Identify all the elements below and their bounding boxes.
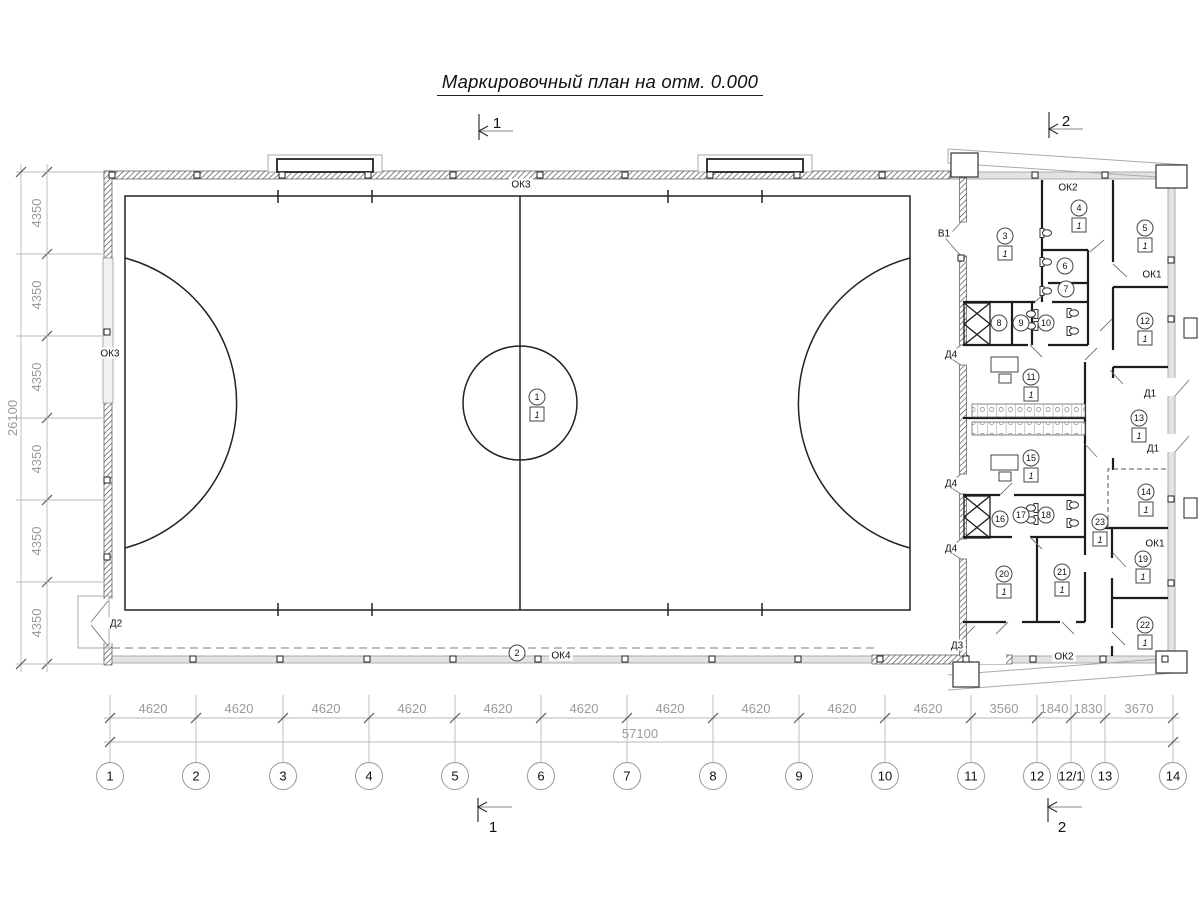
dim-label: 3670 <box>1125 701 1154 716</box>
room-number: 9 <box>1018 318 1023 328</box>
dim-label: 1840 <box>1040 701 1069 716</box>
column-square <box>622 172 628 178</box>
room-number: 14 <box>1141 487 1151 497</box>
room-number: 20 <box>999 569 1009 579</box>
floor-tag: 1 <box>1142 638 1147 648</box>
column-square <box>1030 656 1036 662</box>
grid-bubble-label: 12/1 <box>1058 769 1083 784</box>
hatched-wall <box>104 171 950 179</box>
room-number: 3 <box>1002 231 1007 241</box>
room-number: 2 <box>514 648 519 658</box>
room-number: 4 <box>1076 203 1081 213</box>
column-square <box>365 172 371 178</box>
column-square <box>190 656 196 662</box>
column-square <box>877 656 883 662</box>
opening-label: ОК2 <box>1054 652 1074 663</box>
dim-label: 4620 <box>398 701 427 716</box>
dim-total-label: 57100 <box>622 726 658 741</box>
wc-fixture <box>1070 502 1079 509</box>
dim-label: 4350 <box>29 527 44 556</box>
dim-label: 4350 <box>29 609 44 638</box>
floor-tag: 1 <box>1142 334 1147 344</box>
room-number: 6 <box>1062 261 1067 271</box>
field-left-arc <box>125 258 237 548</box>
opening-label: Д2 <box>110 619 123 630</box>
opening-label: Д4 <box>945 479 958 490</box>
opening-label: ОК4 <box>551 651 571 662</box>
column-square <box>194 172 200 178</box>
column-square <box>794 172 800 178</box>
room-number: 11 <box>1026 372 1035 382</box>
floor-tag: 1 <box>1059 585 1064 595</box>
section-marker-2-top: 2 <box>1049 112 1083 138</box>
room-number: 17 <box>1016 510 1026 520</box>
dim-label: 4350 <box>29 445 44 474</box>
grid-bubble-label: 2 <box>192 769 199 784</box>
wc-fixture <box>1043 259 1052 266</box>
room-number: 1 <box>534 392 539 402</box>
wc-fixture <box>1070 520 1079 527</box>
opening-label: ОК1 <box>1142 270 1162 281</box>
room-number: 16 <box>995 514 1005 524</box>
title-block: Маркировочный план на отм. 0.000 <box>0 71 1200 93</box>
opening-label: Д1 <box>1147 444 1160 455</box>
column-square <box>104 329 110 335</box>
field-boundary <box>125 196 910 610</box>
door-gap-D1 <box>1167 434 1176 452</box>
dim-total-label: 26100 <box>5 400 20 436</box>
floor-tag: 1 <box>1028 471 1033 481</box>
grid-bubble-label: 13 <box>1098 769 1112 784</box>
exterior-outlines <box>78 149 1187 690</box>
floor-tag: 1 <box>1136 431 1141 441</box>
floor-tag: 1 <box>1140 572 1145 582</box>
room-number: 13 <box>1134 413 1144 423</box>
opening-label: ОК2 <box>1058 183 1078 194</box>
column-square <box>709 656 715 662</box>
dim-label: 4620 <box>225 701 254 716</box>
section-label: 1 <box>493 115 501 132</box>
grid-bubble-label: 5 <box>451 769 458 784</box>
opening-label: ОК1 <box>1145 539 1165 550</box>
column-square <box>364 656 370 662</box>
grid-bubble-label: 3 <box>279 769 286 784</box>
room-number: 5 <box>1142 223 1147 233</box>
dim-label: 3560 <box>990 701 1019 716</box>
dim-label: 4620 <box>570 701 599 716</box>
goal-right <box>698 155 812 172</box>
room-number: 12 <box>1140 316 1150 326</box>
column-square <box>450 656 456 662</box>
grid-bubble-label: 6 <box>537 769 544 784</box>
column-square <box>1102 172 1108 178</box>
floor-tag: 1 <box>1076 221 1081 231</box>
grid-bubble-label: 9 <box>795 769 802 784</box>
room-number: 18 <box>1041 510 1051 520</box>
floor-tag: 1 <box>1097 535 1102 545</box>
floor-tag: 1 <box>1002 249 1007 259</box>
dim-label: 4620 <box>656 701 685 716</box>
grid-bubble-label: 10 <box>878 769 892 784</box>
room-number: 23 <box>1095 517 1105 527</box>
wc-fixture <box>1043 288 1052 295</box>
grid-bubble-label: 11 <box>964 769 978 784</box>
room-number: 19 <box>1138 554 1148 564</box>
room-number: 8 <box>996 318 1001 328</box>
opening-label: ОК3 <box>100 349 120 360</box>
room-number: 7 <box>1063 284 1068 294</box>
dim-label: 4620 <box>312 701 341 716</box>
floor-tag: 1 <box>1001 587 1006 597</box>
column-square <box>109 172 115 178</box>
opening-label: Д4 <box>945 544 958 555</box>
field-right-arc <box>798 258 910 548</box>
grid-bubble-label: 7 <box>623 769 630 784</box>
dim-label: 4620 <box>828 701 857 716</box>
column-square <box>707 172 713 178</box>
floor-tag: 1 <box>1142 241 1147 251</box>
section-label: 2 <box>1058 819 1066 836</box>
column-square <box>1168 580 1174 586</box>
wc-fixture <box>1043 230 1052 237</box>
exterior-windows <box>1184 318 1197 518</box>
hatched-wall <box>104 171 112 665</box>
column-square <box>1168 257 1174 263</box>
opening-label: Д3 <box>951 641 964 652</box>
sports-field <box>125 190 910 616</box>
dim-label: 4350 <box>29 363 44 392</box>
room14-dashed-wall <box>1108 469 1168 528</box>
column-square <box>104 477 110 483</box>
opening-label: Д4 <box>945 350 958 361</box>
column-square <box>104 554 110 560</box>
page-title: Маркировочный план на отм. 0.000 <box>437 71 763 96</box>
dim-label: 4620 <box>742 701 771 716</box>
wc-fixture <box>1027 311 1036 318</box>
column-square <box>795 656 801 662</box>
column-square <box>450 172 456 178</box>
section-marker-2-bottom: 2 <box>1048 798 1082 836</box>
door-gap-D1 <box>1167 378 1176 396</box>
floor-plan-svg: 1 2 1 2 43504350435043504350435026100123… <box>0 0 1200 900</box>
dim-label: 4620 <box>139 701 168 716</box>
room-number: 10 <box>1041 318 1051 328</box>
column-square <box>1100 656 1106 662</box>
grid-bubble-label: 12 <box>1030 769 1044 784</box>
dim-label: 1830 <box>1074 701 1103 716</box>
column-square <box>1168 496 1174 502</box>
column-square <box>535 656 541 662</box>
column-square <box>1168 316 1174 322</box>
grid-bubble-label: 14 <box>1166 769 1180 784</box>
dim-label: 4620 <box>914 701 943 716</box>
floor-tag: 1 <box>1028 390 1033 400</box>
opening-label: ОК3 <box>511 180 531 191</box>
opening-label: Д1 <box>1144 389 1157 400</box>
bench-rows <box>972 404 1085 435</box>
column-square <box>622 656 628 662</box>
opening-label: В1 <box>938 229 951 240</box>
dim-label: 4350 <box>29 281 44 310</box>
shaft <box>964 303 990 538</box>
goal-left <box>268 155 382 172</box>
section-label: 2 <box>1062 113 1070 130</box>
drawing-sheet: Маркировочный план на отм. 0.000 <box>0 0 1200 900</box>
column-square <box>1162 656 1168 662</box>
section-marker-1-bottom: 1 <box>478 798 512 836</box>
wc-fixture <box>1070 328 1079 335</box>
dim-label: 4620 <box>484 701 513 716</box>
grid-bubble-label: 4 <box>365 769 372 784</box>
section-label: 1 <box>489 819 497 836</box>
column-square <box>537 172 543 178</box>
column-square <box>963 656 969 662</box>
wc-fixture <box>1070 310 1079 317</box>
dim-label: 4350 <box>29 199 44 228</box>
column-square <box>879 172 885 178</box>
grid-bubble-label: 1 <box>106 769 113 784</box>
room-number: 21 <box>1057 567 1067 577</box>
column-square <box>279 172 285 178</box>
room-number: 15 <box>1026 453 1036 463</box>
floor-tag: 1 <box>534 410 539 420</box>
column-square <box>1032 172 1038 178</box>
column-square <box>958 255 964 261</box>
room-number: 22 <box>1140 620 1150 630</box>
grid-bubble-label: 8 <box>709 769 716 784</box>
section-marker-1-top: 1 <box>479 114 513 140</box>
column-square <box>277 656 283 662</box>
floor-tag: 1 <box>1143 505 1148 515</box>
